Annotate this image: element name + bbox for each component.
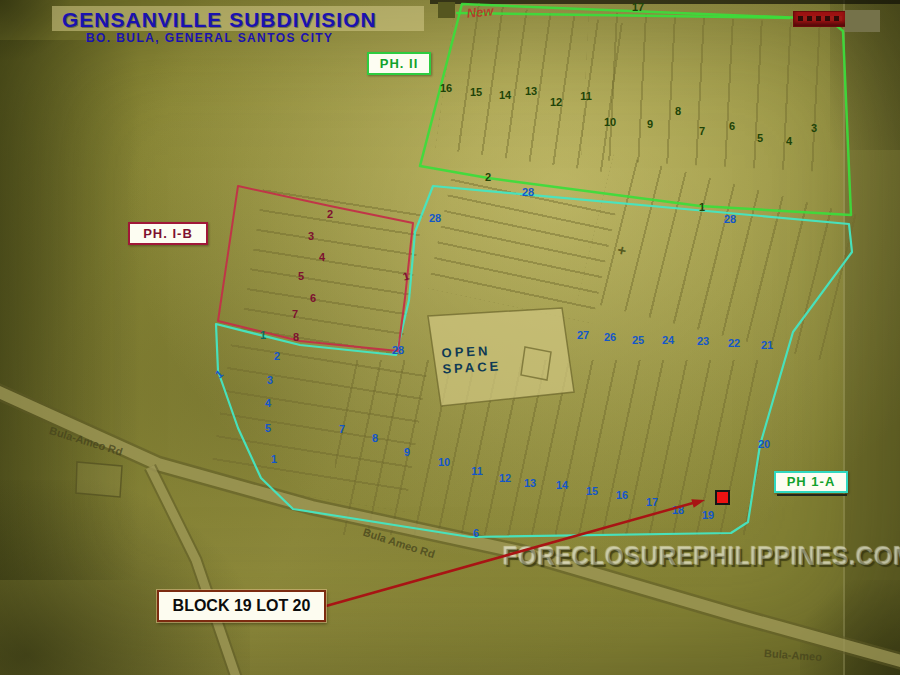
- lot-number-ph1a: 18: [672, 504, 684, 516]
- lot-number-boundary: 28: [392, 344, 404, 356]
- lot-number-ph1b: 4: [319, 251, 325, 263]
- lot-number-ph1a: 27: [577, 329, 589, 341]
- lot-number-ph2: 16: [440, 82, 452, 94]
- lot-number-ph2: 14: [499, 89, 511, 101]
- block-lot-callout: BLOCK 19 LOT 20: [157, 590, 326, 622]
- lot-number-ph1a: 24: [662, 334, 674, 346]
- lot-number-boundary: 28: [522, 186, 534, 198]
- lot-number-ph2: 13: [525, 85, 537, 97]
- lot-number-ph1a: 7: [339, 423, 345, 435]
- lot-number-ph1a: 23: [697, 335, 709, 347]
- lot-number-ph1b: 1: [401, 269, 410, 282]
- lot-number-ph1a: 13: [524, 477, 536, 489]
- lot-numbers-layer: 1716151413121110987654321234567812828282…: [0, 0, 900, 675]
- lot-number-ph1a: 1: [260, 329, 266, 341]
- lot-number-ph2: 4: [786, 135, 792, 147]
- lot-number-ph2: 1: [699, 201, 705, 213]
- lot-number-ph2: 3: [811, 122, 817, 134]
- lot-number-ph1a: 25: [632, 334, 644, 346]
- lot-number-ph1a: 9: [404, 446, 410, 458]
- lot-number-ph1a: 20: [758, 438, 770, 450]
- lot-number-ph1a: 19: [702, 509, 714, 521]
- lot-number-ph1a: 14: [556, 479, 568, 491]
- lot-number-ph1a: 10: [438, 456, 450, 468]
- lot-number-ph1b: 6: [310, 292, 316, 304]
- lot-number-ph1a: 1: [213, 367, 225, 380]
- lot-number-ph2: 10: [604, 116, 616, 128]
- lot-number-ph1b: 8: [293, 331, 299, 343]
- lot-number-ph1a: 15: [586, 485, 598, 497]
- lot-number-ph2: 6: [729, 120, 735, 132]
- lot-number-ph1b: 5: [298, 270, 304, 282]
- lot-number-ph1a: 1: [271, 453, 277, 465]
- lot-number-ph1a: 6: [473, 527, 479, 539]
- lot-number-ph1a: 12: [499, 472, 511, 484]
- lot-number-ph2: 9: [647, 118, 653, 130]
- lot-number-ph1a: 5: [265, 422, 271, 434]
- lot-number-ph2: 2: [485, 171, 491, 183]
- lot-number-ph1b: 3: [308, 230, 314, 242]
- lot-number-boundary: 28: [429, 212, 441, 224]
- lot-number-ph2: 7: [699, 125, 705, 137]
- lot-number-ph2: 8: [675, 105, 681, 117]
- lot-number-ph1a: 2: [274, 350, 280, 362]
- lot-number-ph2: 12: [550, 96, 562, 108]
- lot-number-ph1a: 26: [604, 331, 616, 343]
- lot-number-ph1a: 11: [471, 465, 483, 477]
- lot-number-ph2: 15: [470, 86, 482, 98]
- lot-number-ph1a: 21: [761, 339, 773, 351]
- lot-number-ph1a: 16: [616, 489, 628, 501]
- lot-number-ph2: 11: [580, 90, 592, 102]
- subdivision-map: GENSANVILLE SUBDIVISION BO. BULA, GENERA…: [0, 0, 900, 675]
- lot-number-boundary: 28: [724, 213, 736, 225]
- lot-number-ph1a: 4: [265, 397, 271, 409]
- lot-number-ph1a: 3: [267, 374, 273, 386]
- lot-number-ph1b: 2: [327, 208, 333, 220]
- watermark: FORECLOSUREPHILIPPINES.COM: [503, 541, 900, 572]
- lot-number-ph1a: 8: [372, 432, 378, 444]
- lot-number-ph2: 5: [757, 132, 763, 144]
- lot-number-ph1a: 17: [646, 496, 658, 508]
- lot-number-ph1b: 7: [292, 308, 298, 320]
- lot-number-ph1a: 22: [728, 337, 740, 349]
- lot-number-ph2: 17: [632, 1, 644, 13]
